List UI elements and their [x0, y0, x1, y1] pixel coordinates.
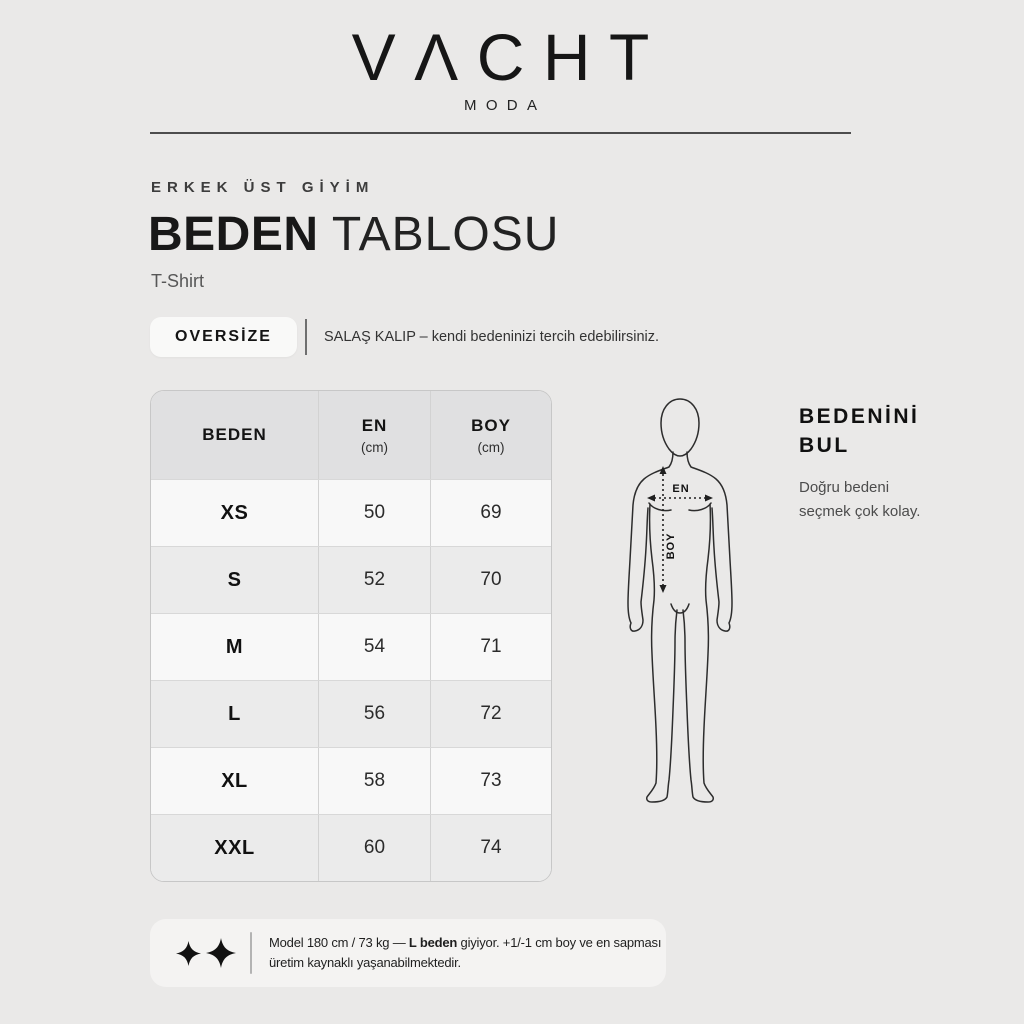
boy-value: 74 — [430, 815, 551, 881]
note-text: Model 180 cm / 73 kg — L beden giyiyor. … — [269, 933, 661, 973]
header-label-en: EN — [362, 416, 388, 436]
header-divider-line — [150, 132, 851, 134]
page-title: BEDEN TABLOSU — [148, 210, 559, 260]
header-cell-en: EN (cm) — [318, 391, 430, 479]
fit-description: SALAŞ KALIP – kendi bedeninizi tercih ed… — [324, 329, 659, 345]
size-label: XXL — [151, 815, 318, 881]
boy-value: 72 — [430, 681, 551, 747]
size-table: BEDEN EN (cm) BOY (cm) XS 50 69 S 52 70 … — [150, 390, 552, 882]
sparkle-icon — [176, 941, 201, 966]
oversize-badge: OVERSİZE — [150, 317, 297, 357]
note-line1-pre: Model 180 cm / 73 kg — — [269, 935, 409, 950]
header-label-boy: BOY — [471, 416, 511, 436]
boy-value: 71 — [430, 614, 551, 680]
size-label: S — [151, 547, 318, 613]
arrow-right-icon — [705, 495, 713, 502]
brand-header: VΛCHT MODA — [150, 24, 851, 114]
en-value: 54 — [318, 614, 430, 680]
body-figure-svg: EN BOY — [620, 392, 740, 808]
guide-text: Doğru bedeni seçmek çok kolay. — [799, 476, 920, 524]
sparkle-icons — [176, 938, 236, 968]
arrow-down-icon — [660, 585, 667, 593]
table-row-s: S 52 70 — [151, 546, 551, 613]
en-value: 58 — [318, 748, 430, 814]
model-info-note: Model 180 cm / 73 kg — L beden giyiyor. … — [150, 919, 666, 987]
boy-arrow-label: BOY — [665, 533, 677, 560]
note-line1: Model 180 cm / 73 kg — L beden giyiyor. … — [269, 933, 661, 953]
en-value: 52 — [318, 547, 430, 613]
boy-value: 69 — [430, 480, 551, 546]
boy-value: 73 — [430, 748, 551, 814]
body-figure: EN BOY — [620, 392, 740, 808]
size-table-header-row: BEDEN EN (cm) BOY (cm) — [151, 391, 551, 479]
note-line1-post: giyiyor. +1/-1 cm boy ve en sapması — [457, 935, 661, 950]
find-your-size-block: BEDENİNİ BUL Doğru bedeni seçmek çok kol… — [799, 402, 920, 524]
en-value: 56 — [318, 681, 430, 747]
header-cell-beden: BEDEN — [151, 391, 318, 479]
table-row-xxl: XXL 60 74 — [151, 814, 551, 881]
en-measure-arrow: EN — [647, 483, 713, 502]
page-title-bold: BEDEN — [148, 208, 319, 261]
size-label: M — [151, 614, 318, 680]
product-subtitle: T-Shirt — [151, 271, 204, 292]
sparkle-icon — [206, 938, 236, 968]
table-row-l: L 56 72 — [151, 680, 551, 747]
en-value: 50 — [318, 480, 430, 546]
note-divider — [250, 932, 252, 974]
size-label: XL — [151, 748, 318, 814]
header-cell-boy: BOY (cm) — [430, 391, 551, 479]
note-line2: üretim kaynaklı yaşanabilmektedir. — [269, 953, 661, 973]
arrow-left-icon — [647, 495, 655, 502]
fit-divider — [305, 319, 307, 355]
guide-text-line2: seçmek çok kolay. — [799, 500, 920, 524]
en-value: 60 — [318, 815, 430, 881]
fit-info-row: OVERSİZE SALAŞ KALIP – kendi bedeninizi … — [150, 317, 659, 357]
size-label: L — [151, 681, 318, 747]
page-title-light: TABLOSU — [332, 208, 560, 261]
brand-sub-wordmark: MODA — [150, 97, 851, 114]
boy-value: 70 — [430, 547, 551, 613]
guide-title-line2: BUL — [799, 431, 920, 460]
guide-title: BEDENİNİ BUL — [799, 402, 920, 460]
size-label: XS — [151, 480, 318, 546]
table-row-xs: XS 50 69 — [151, 479, 551, 546]
guide-title-line1: BEDENİNİ — [799, 402, 920, 431]
table-row-m: M 54 71 — [151, 613, 551, 680]
size-chart-page: VΛCHT MODA ERKEK ÜST GİYİM BEDEN TABLOSU… — [0, 0, 1024, 1024]
category-eyebrow: ERKEK ÜST GİYİM — [151, 179, 374, 196]
table-row-xl: XL 58 73 — [151, 747, 551, 814]
en-arrow-label: EN — [672, 483, 689, 495]
body-outline — [628, 399, 732, 802]
guide-text-line1: Doğru bedeni — [799, 476, 920, 500]
header-label-beden: BEDEN — [202, 425, 267, 445]
header-unit-boy: (cm) — [478, 440, 505, 455]
header-unit-en: (cm) — [361, 440, 388, 455]
brand-logo: VΛCHT — [150, 24, 851, 90]
note-line1-bold: L beden — [409, 935, 457, 950]
